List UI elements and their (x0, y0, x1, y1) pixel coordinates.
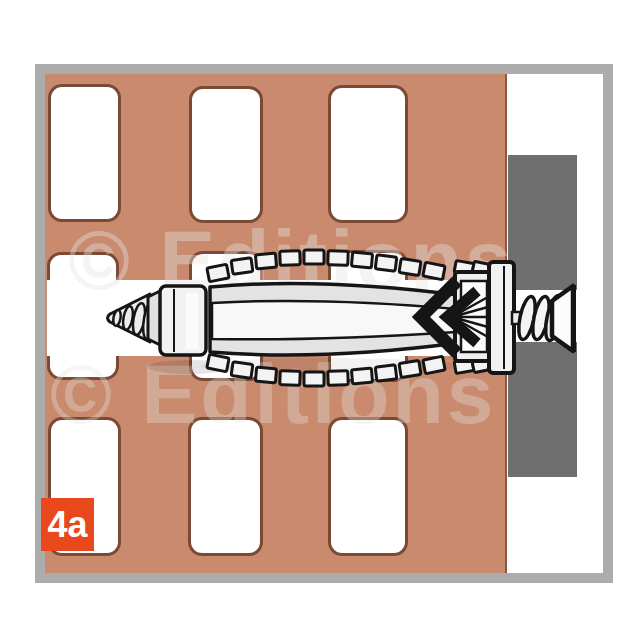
illustration-page: © Editions © Editions (0, 0, 640, 640)
frame-border (35, 64, 613, 583)
step-badge-label: 4a (47, 507, 87, 543)
step-badge: 4a (41, 498, 94, 551)
